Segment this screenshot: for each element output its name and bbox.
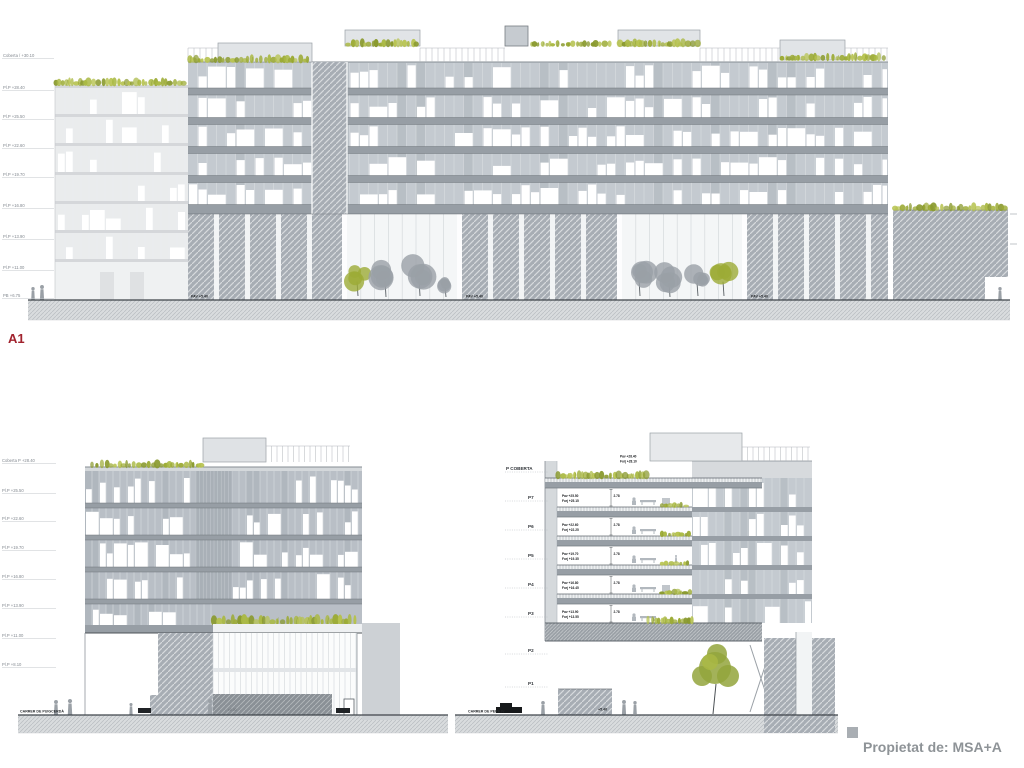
level-label: Pl.P +28.40	[3, 85, 25, 90]
ground-floor-label: PAV +5.40	[751, 295, 768, 299]
ground-floor-label: PAV +5.40	[191, 295, 208, 299]
floor-slab	[188, 118, 888, 125]
ground-note: +5.40	[598, 708, 607, 712]
level-label: Coberta P +28.40	[2, 458, 36, 463]
floor-annotation: Pav +22.60	[562, 523, 579, 527]
floor-slab	[188, 205, 888, 215]
level-label: Pl.P +25.50	[2, 488, 24, 493]
floor-slab	[85, 599, 362, 604]
footer-logo-square	[847, 727, 858, 738]
cut-floor-slab	[557, 565, 692, 575]
floor-label: P7	[528, 495, 534, 500]
floor-height-dim: 2.78	[614, 494, 620, 498]
person-silhouette	[129, 703, 132, 715]
floor-label: P6	[528, 524, 534, 529]
section-marker-a1: A1	[8, 331, 25, 346]
ground-floor-label: PAV +5.40	[466, 295, 483, 299]
level-label: Pl.P +19.70	[3, 172, 25, 177]
cut-floor-slab	[557, 536, 692, 546]
transfer-slab	[545, 623, 762, 641]
floor-slab	[188, 88, 888, 95]
floor-annotation: Pav +16.80	[562, 581, 579, 585]
cut-floor-slab	[557, 507, 692, 517]
person-silhouette	[622, 700, 626, 715]
floor-height-dim: 2.78	[614, 610, 620, 614]
floor-annotation: Forj +16.45	[562, 586, 579, 590]
cut-floor-slab	[545, 478, 762, 488]
roof-annotation: Pav +28.40	[620, 455, 637, 459]
floor-annotation: Pav +19.70	[562, 552, 579, 556]
level-label: Pl.P +16.80	[3, 203, 25, 208]
level-label: Coberta / +30.10	[3, 53, 35, 58]
floor-slab	[188, 147, 888, 154]
floor-label: P4	[528, 582, 534, 587]
level-label: Pl.P +16.80	[2, 574, 24, 579]
person-silhouette	[68, 699, 72, 715]
person-silhouette	[998, 287, 1002, 300]
level-label: Pl.P +25.50	[3, 114, 25, 119]
floor-label: P1	[528, 681, 534, 686]
person-silhouette	[633, 701, 637, 714]
level-label: Pl.P +8.10	[2, 662, 22, 667]
level-label: Pl.P +19.70	[2, 545, 24, 550]
ground-hatch-band	[28, 300, 1010, 320]
roof-annotation: Forj +28.10	[620, 460, 637, 464]
ground-note: ±0.00	[228, 708, 237, 712]
floor-annotation: Forj +13.55	[562, 615, 579, 619]
floor-slab	[85, 503, 362, 508]
floor-height-dim: 2.78	[614, 552, 620, 556]
floor-annotation: Pav +13.90	[562, 610, 579, 614]
floor-label: P3	[528, 611, 534, 616]
person-silhouette	[31, 287, 35, 300]
floor-label: P5	[528, 553, 534, 558]
floor-annotation: Forj +19.35	[562, 557, 579, 561]
architectural-drawing-svg: Coberta / +30.10 Pl.P +28.40 Pl.P +25.50…	[0, 0, 1024, 768]
level-label: Pl.P +11.00	[3, 265, 25, 270]
floor-height-dim: 2.78	[614, 581, 620, 585]
level-label: Pl.P +22.60	[2, 516, 24, 521]
street-label: CARRER DE PUIGCERDÀ	[20, 709, 64, 714]
floor-label: P COBERTA	[506, 466, 533, 471]
floor-label: P2	[528, 648, 534, 653]
floor-annotation: Forj +22.25	[562, 528, 579, 532]
floor-slab	[188, 176, 888, 183]
ownership-credit: Propietat de: MSA+A	[863, 739, 1002, 755]
drawing-sheet: Coberta / +30.10 Pl.P +28.40 Pl.P +25.50…	[0, 0, 1024, 768]
floor-slab	[85, 567, 362, 572]
level-label: Pl.P +22.60	[3, 143, 25, 148]
level-label: Pl.P +13.90	[3, 234, 25, 239]
floor-annotation: Forj +25.15	[562, 499, 579, 503]
level-label: Pl.P +13.90	[2, 603, 24, 608]
cut-floor-slab	[557, 594, 692, 604]
person-silhouette	[208, 699, 212, 715]
floor-annotation: Pav +25.50	[562, 494, 579, 498]
ground-floor	[188, 214, 888, 300]
street-label: CARRER DE PERE IV	[468, 710, 505, 714]
adjacent-building-ghost	[55, 85, 188, 300]
floor-slab	[85, 535, 362, 540]
person-silhouette	[541, 701, 545, 715]
level-label: PB +6.75	[3, 293, 21, 298]
person-silhouette	[40, 285, 44, 300]
neighbour-wall	[362, 623, 400, 720]
level-label: Pl.P +11.00	[2, 633, 24, 638]
floor-height-dim: 2.78	[614, 523, 620, 527]
